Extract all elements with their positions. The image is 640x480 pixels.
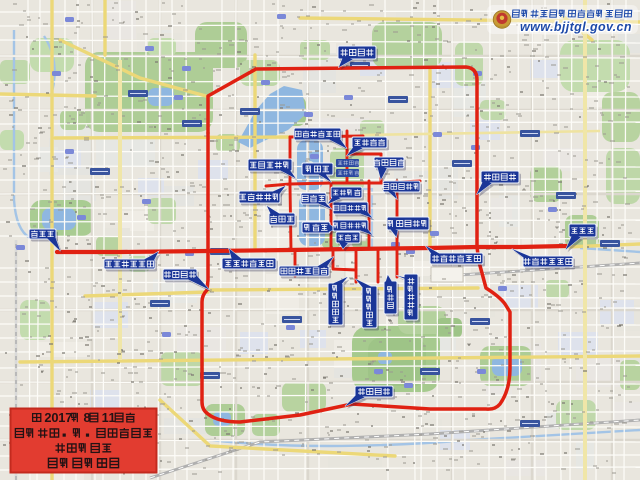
svg-text:www.bjjtgl.gov.cn: www.bjjtgl.gov.cn bbox=[520, 20, 632, 34]
